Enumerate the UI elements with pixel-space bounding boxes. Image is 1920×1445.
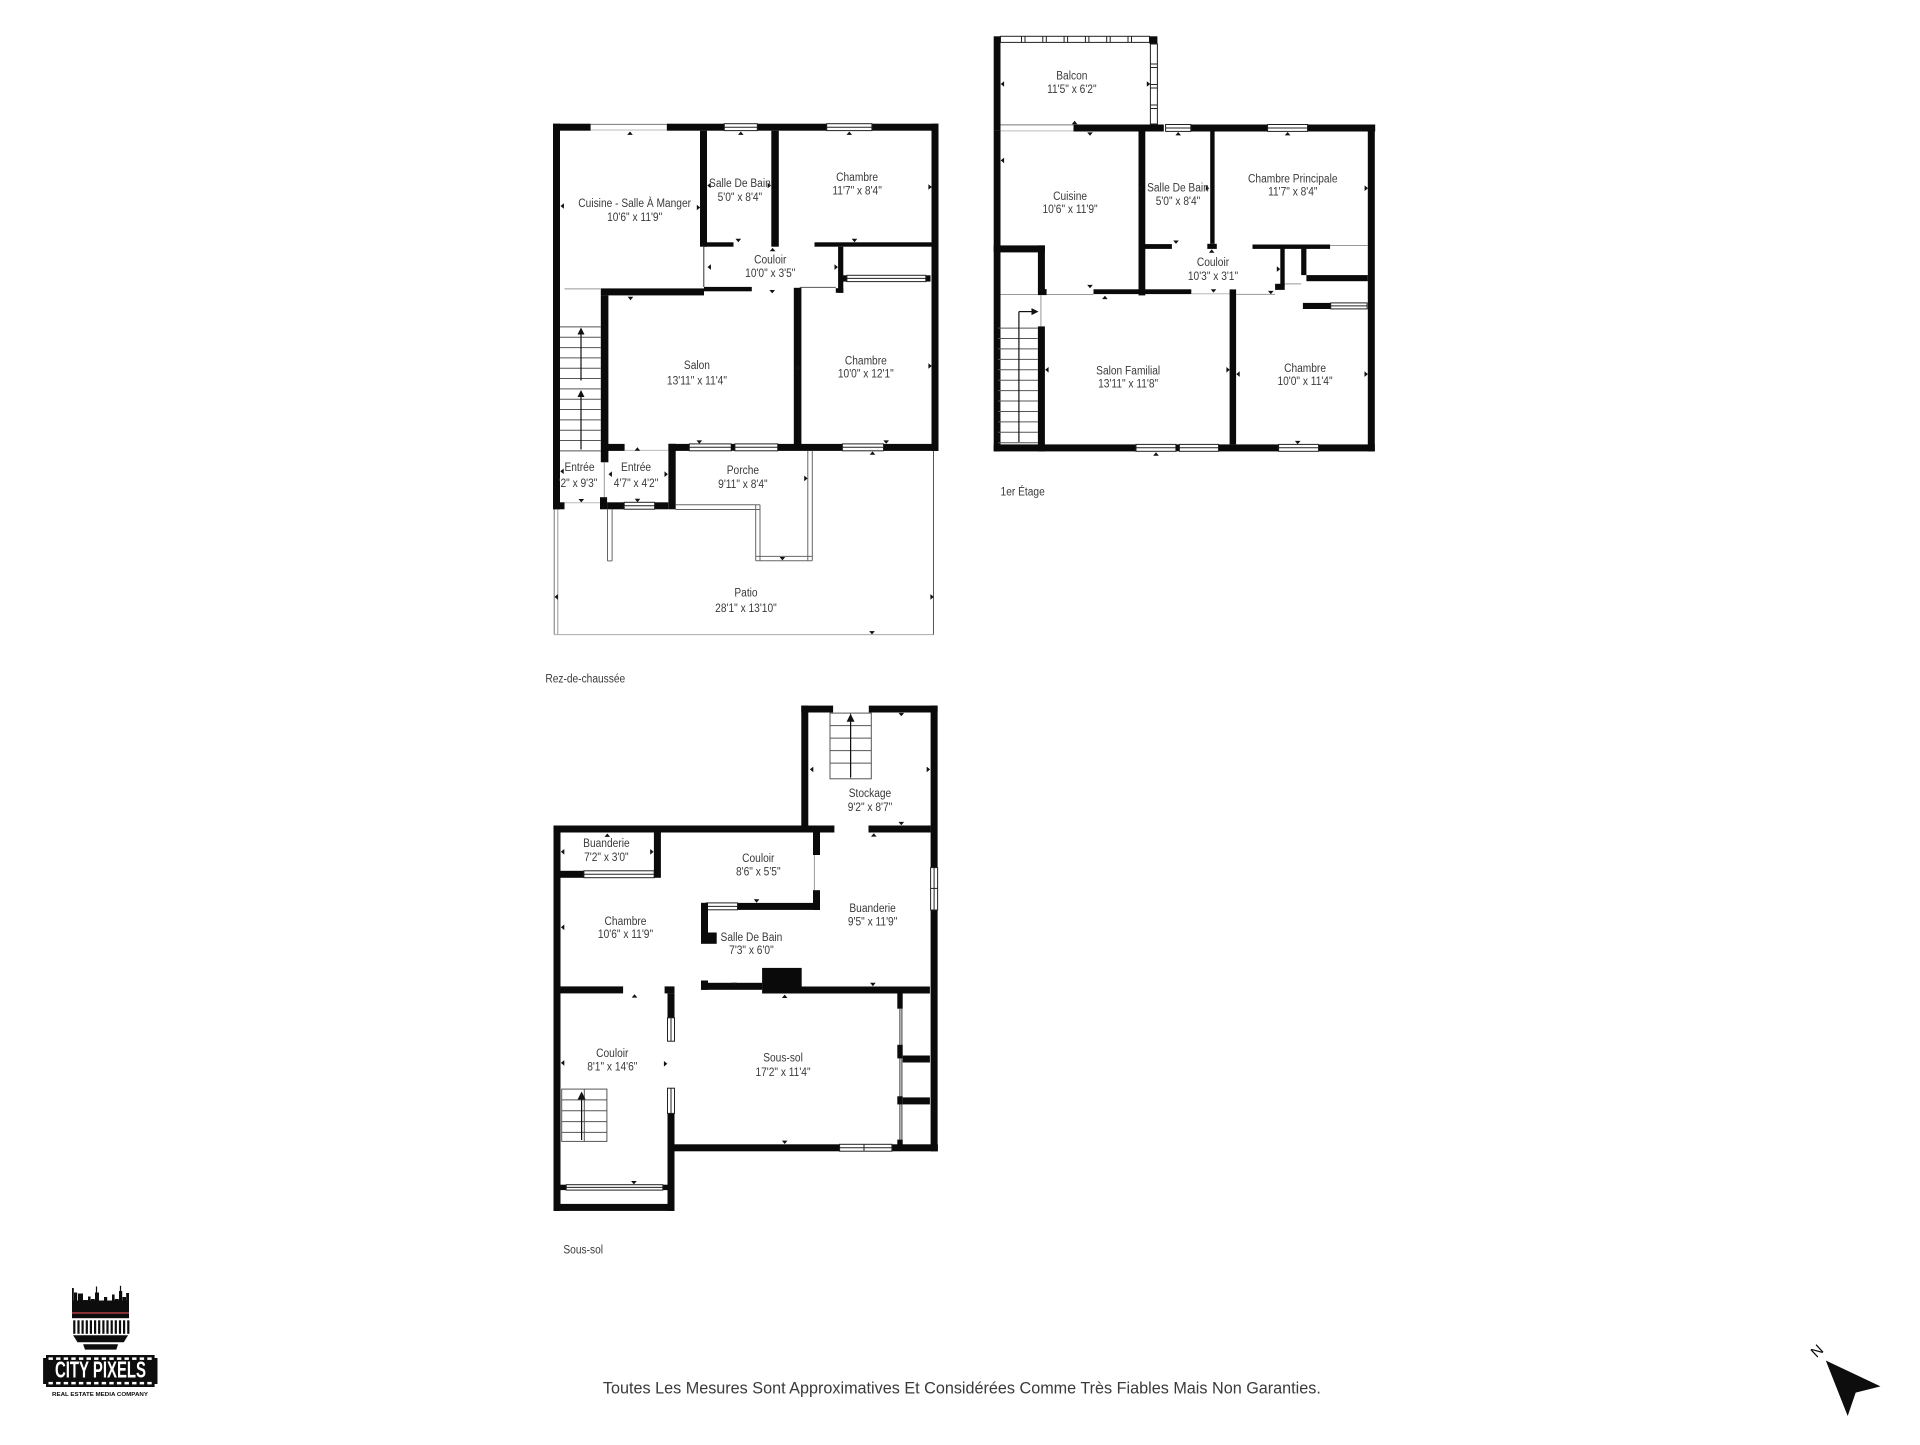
svg-text:8'6" x 5'5": 8'6" x 5'5"	[736, 866, 781, 879]
svg-text:10'6" x 11'9": 10'6" x 11'9"	[1043, 203, 1098, 216]
svg-text:11'5" x 6'2": 11'5" x 6'2"	[1047, 84, 1097, 97]
svg-text:9'2" x 8'7": 9'2" x 8'7"	[848, 802, 893, 815]
svg-text:13'11" x 11'4": 13'11" x 11'4"	[667, 375, 727, 388]
svg-text:5'0" x 8'4": 5'0" x 8'4"	[718, 191, 763, 204]
svg-text:10'6" x 11'9": 10'6" x 11'9"	[598, 929, 653, 942]
svg-text:Couloir: Couloir	[1197, 257, 1230, 270]
svg-text:7'3" x 6'0": 7'3" x 6'0"	[729, 944, 774, 957]
svg-text:Balcon: Balcon	[1056, 70, 1087, 83]
svg-text:Entrée: Entrée	[621, 461, 651, 474]
svg-text:Patio: Patio	[734, 587, 757, 600]
svg-text:Salon Familial: Salon Familial	[1096, 365, 1160, 378]
svg-text:Couloir: Couloir	[742, 852, 775, 865]
svg-text:17'2" x 11'4": 17'2" x 11'4"	[755, 1066, 810, 1079]
svg-text:Chambre: Chambre	[845, 355, 887, 368]
svg-text:Porche: Porche	[727, 465, 759, 478]
svg-text:7'2" x 3'0": 7'2" x 3'0"	[584, 851, 629, 864]
svg-text:Salle De Bain: Salle De Bain	[1147, 182, 1209, 195]
svg-text:4'7" x 4'2": 4'7" x 4'2"	[614, 477, 659, 490]
svg-text:10'0" x 11'4": 10'0" x 11'4"	[1277, 375, 1332, 388]
svg-text:Toutes Les Mesures Sont Approx: Toutes Les Mesures Sont Approximatives E…	[603, 1380, 1321, 1398]
svg-text:Salon: Salon	[684, 359, 710, 372]
svg-text:REAL ESTATE MEDIA COMPANY: REAL ESTATE MEDIA COMPANY	[52, 1392, 148, 1398]
svg-text:8'1" x 14'6": 8'1" x 14'6"	[587, 1061, 637, 1074]
svg-text:Couloir: Couloir	[596, 1047, 629, 1060]
svg-text:Cuisine: Cuisine	[1053, 190, 1087, 203]
svg-text:Sous-sol: Sous-sol	[563, 1244, 603, 1257]
svg-text:Salle De Bain: Salle De Bain	[721, 931, 783, 944]
svg-text:Buanderie: Buanderie	[583, 837, 629, 850]
svg-text:Rez-de-chaussée: Rez-de-chaussée	[545, 673, 625, 686]
svg-text:Buanderie: Buanderie	[849, 903, 895, 916]
svg-text:Chambre Principale: Chambre Principale	[1248, 173, 1337, 186]
svg-text:10'3" x 3'1": 10'3" x 3'1"	[1188, 270, 1238, 283]
svg-text:10'0" x 12'1": 10'0" x 12'1"	[838, 368, 894, 381]
svg-text:Couloir: Couloir	[754, 254, 787, 267]
svg-text:CITY PIXELS: CITY PIXELS	[55, 1358, 146, 1384]
svg-text:'2" x 9'3": '2" x 9'3"	[559, 477, 598, 490]
svg-text:5'0" x 8'4": 5'0" x 8'4"	[1156, 196, 1201, 209]
svg-text:11'7" x 8'4": 11'7" x 8'4"	[1268, 186, 1318, 199]
svg-text:28'1" x 13'10": 28'1" x 13'10"	[715, 602, 777, 615]
svg-text:10'0" x 3'5": 10'0" x 3'5"	[745, 268, 795, 281]
svg-text:Chambre: Chambre	[1284, 362, 1326, 375]
svg-text:9'11" x 8'4": 9'11" x 8'4"	[718, 478, 768, 491]
svg-text:Chambre: Chambre	[836, 171, 878, 184]
svg-text:Cuisine - Salle À Manger: Cuisine - Salle À Manger	[578, 196, 691, 210]
svg-text:10'6" x 11'9": 10'6" x 11'9"	[607, 211, 662, 224]
svg-text:11'7" x 8'4": 11'7" x 8'4"	[832, 185, 882, 198]
svg-text:Chambre: Chambre	[605, 916, 647, 929]
svg-text:9'5" x 11'9": 9'5" x 11'9"	[848, 916, 898, 929]
svg-text:13'11" x 11'8": 13'11" x 11'8"	[1098, 378, 1158, 391]
svg-text:Salle De Bain: Salle De Bain	[709, 177, 771, 190]
svg-text:Sous-sol: Sous-sol	[763, 1052, 803, 1065]
svg-text:1er Étage: 1er Étage	[1001, 485, 1045, 499]
svg-text:Stockage: Stockage	[849, 788, 891, 801]
svg-text:Entrée: Entrée	[564, 461, 594, 474]
